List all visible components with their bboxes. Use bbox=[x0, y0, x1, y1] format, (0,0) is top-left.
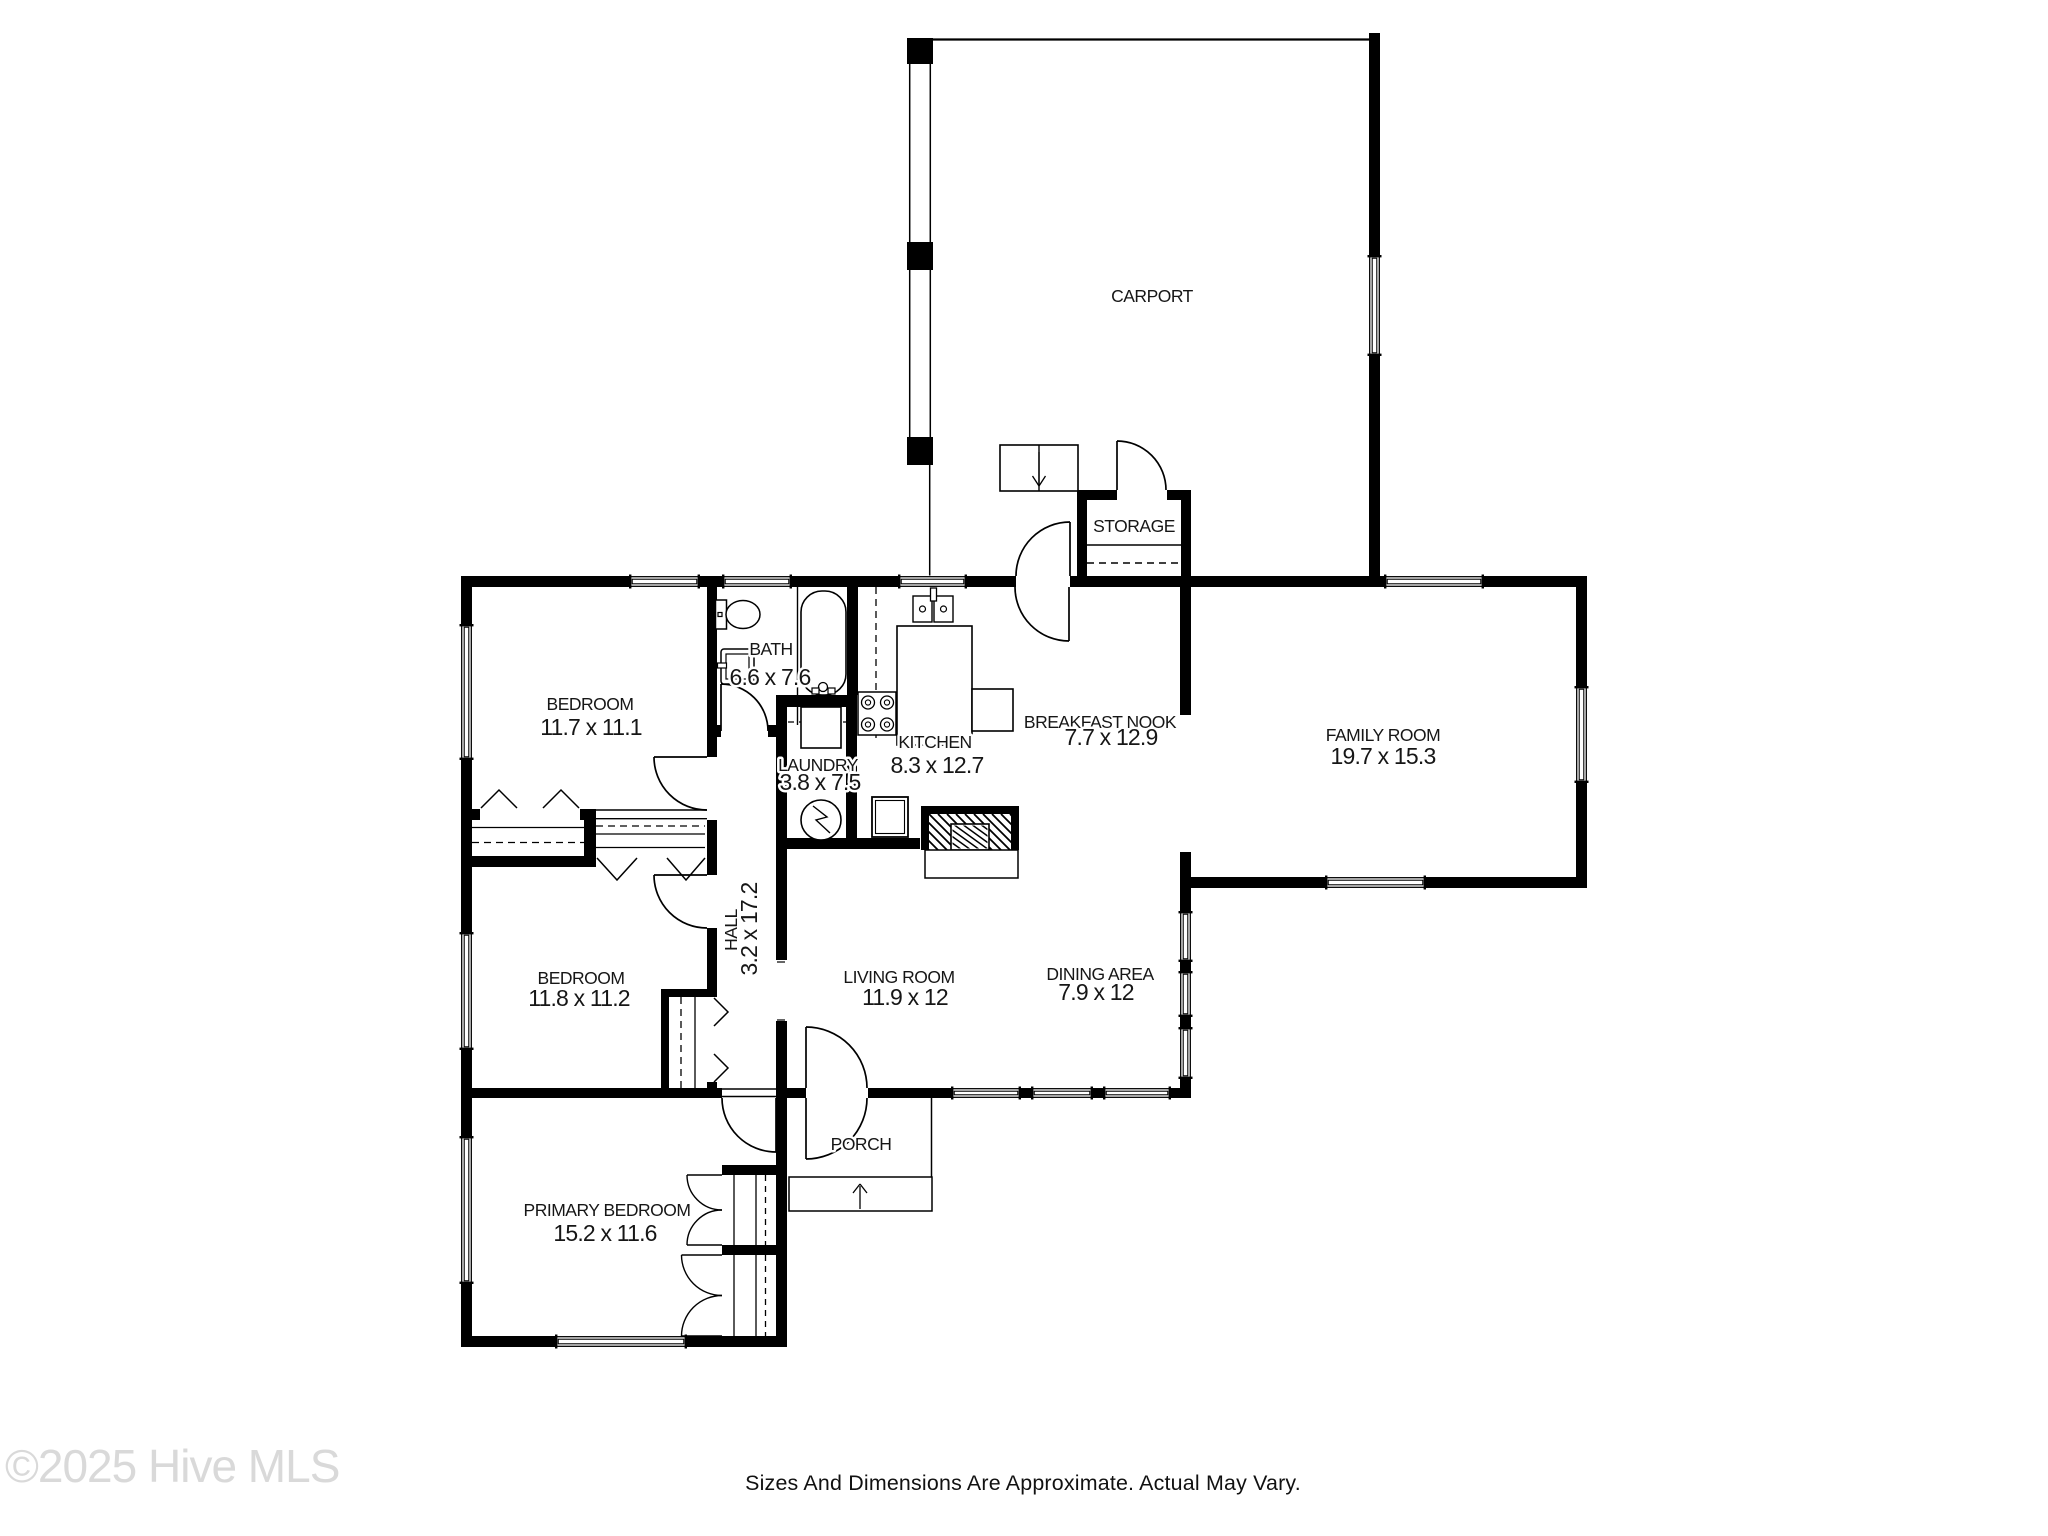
svg-text:3.8 x 7.5: 3.8 x 7.5 bbox=[779, 769, 860, 795]
svg-text:15.2 x 11.6: 15.2 x 11.6 bbox=[553, 1220, 656, 1246]
svg-text:11.8 x 11.2: 11.8 x 11.2 bbox=[528, 985, 630, 1011]
svg-text:STORAGE: STORAGE bbox=[1093, 516, 1175, 536]
svg-text:BATH: BATH bbox=[749, 639, 792, 659]
svg-text:11.9 x 12: 11.9 x 12 bbox=[862, 984, 948, 1010]
svg-text:Sizes And Dimensions Are Appro: Sizes And Dimensions Are Approximate. Ac… bbox=[745, 1471, 1301, 1495]
svg-text:19.7 x 15.3: 19.7 x 15.3 bbox=[1330, 743, 1435, 769]
svg-text:©2025 Hive MLS: ©2025 Hive MLS bbox=[5, 1440, 339, 1492]
svg-text:KITCHEN: KITCHEN bbox=[898, 732, 971, 752]
svg-text:7.7 x 12.9: 7.7 x 12.9 bbox=[1064, 724, 1157, 750]
svg-text:3.2 x 17.2: 3.2 x 17.2 bbox=[736, 882, 762, 975]
svg-text:11.7 x 11.1: 11.7 x 11.1 bbox=[540, 714, 642, 740]
svg-text:PORCH: PORCH bbox=[831, 1134, 892, 1154]
svg-text:6.6 x 7.6: 6.6 x 7.6 bbox=[729, 664, 810, 690]
svg-text:7.9 x 12: 7.9 x 12 bbox=[1058, 979, 1133, 1005]
svg-text:CARPORT: CARPORT bbox=[1111, 286, 1194, 306]
svg-text:FAMILY ROOM: FAMILY ROOM bbox=[1326, 725, 1440, 745]
svg-text:BEDROOM: BEDROOM bbox=[547, 694, 634, 714]
svg-text:8.3 x 12.7: 8.3 x 12.7 bbox=[890, 752, 983, 778]
svg-text:PRIMARY BEDROOM: PRIMARY BEDROOM bbox=[524, 1200, 691, 1220]
